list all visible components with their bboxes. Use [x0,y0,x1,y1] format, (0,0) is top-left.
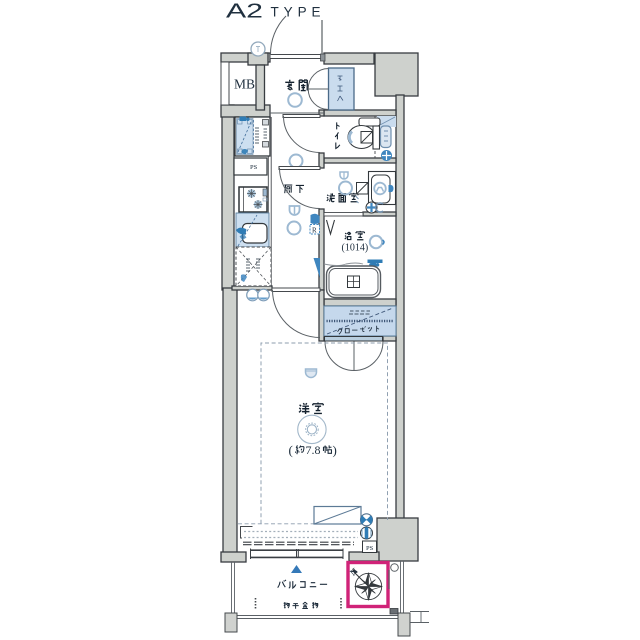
svg-text:MB: MB [234,77,255,92]
svg-text:PS: PS [250,164,258,171]
svg-text:R: R [312,227,317,235]
svg-text:PS: PS [366,545,374,552]
svg-text:A2: A2 [226,1,263,23]
svg-text:(: ( [289,443,293,458]
svg-text:): ) [333,443,337,458]
svg-text:7.8: 7.8 [306,443,321,457]
svg-text:(1014): (1014) [342,243,369,254]
